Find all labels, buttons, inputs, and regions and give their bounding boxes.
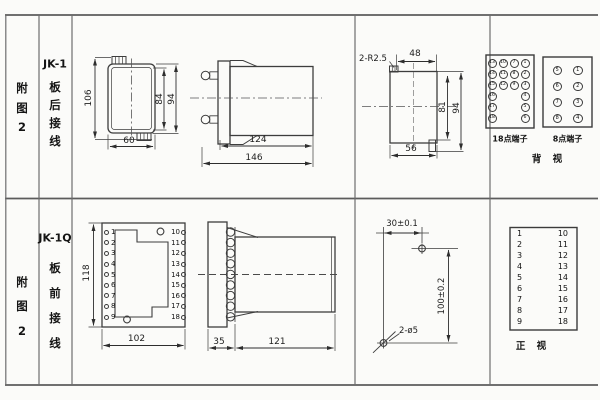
terminal-circle: 8 [510, 70, 519, 79]
dim-102: 102 [128, 334, 145, 344]
terminal-circle: 1 [521, 59, 530, 68]
dim-100: 100±0.2 [437, 278, 447, 315]
dim-94-cutout: 94 [452, 102, 462, 113]
dim-56: 56 [405, 144, 416, 154]
wiring-label-char: 前 [49, 285, 61, 301]
wiring-label-char: 接 [49, 115, 61, 131]
figure-label-char: 2 [18, 120, 26, 134]
dim-35: 35 [213, 337, 224, 347]
dim-118: 118 [82, 264, 92, 281]
terminal-circle: 16 [488, 92, 497, 101]
front-terminal: 1 [104, 228, 115, 237]
terminal-dot-icon [104, 293, 109, 298]
terminal-circle: 17 [488, 103, 497, 112]
terminal-circle: 12 [499, 81, 508, 90]
terminal-dot-icon [181, 240, 186, 245]
dim-30: 30±0.1 [386, 219, 417, 229]
label-front-view: 正 视 [516, 338, 550, 352]
terminal-dot-icon [181, 262, 186, 267]
terminal-circle: 1 [573, 66, 583, 76]
side-view-bottom-drawing [198, 222, 340, 351]
terminal-circle: 10 [499, 59, 508, 68]
front-terminal: 8 [104, 302, 115, 311]
front-terminal: 5 [104, 270, 115, 279]
dim-146: 146 [245, 153, 262, 163]
figure-label-char: 图 [16, 100, 28, 116]
terminal-dot-icon [181, 283, 186, 288]
terminal-dot-icon [104, 230, 109, 235]
terminal-circle: 14 [488, 70, 497, 79]
wiring-label-char: 后 [49, 97, 61, 113]
dim-84: 84 [155, 93, 165, 104]
terminal-table-row: 413 [511, 261, 576, 272]
terminal-circle: 2 [521, 70, 530, 79]
figure-label-char: 附 [16, 274, 28, 290]
terminal-dot-icon [181, 315, 186, 320]
front-terminal: 15 [165, 281, 186, 290]
terminal-dot-icon [104, 262, 109, 267]
front-terminal: 4 [104, 260, 115, 269]
label-18-point: 18点端子 [492, 133, 527, 144]
front-terminal: 11 [165, 238, 186, 247]
front-terminal: 6 [104, 281, 115, 290]
table-grid [5, 15, 598, 385]
terminal-dot-icon [104, 272, 109, 277]
manual-page: 附 图 2 JK-1 板 后 接 线 附 图 2 JK-1Q 板 前 接 线 1… [0, 0, 600, 400]
terminal-circle: 9 [510, 81, 519, 90]
terminal-table-row: 716 [511, 294, 576, 305]
terminal-dot-icon [181, 293, 186, 298]
terminal-table-row: 514 [511, 272, 576, 283]
front-terminal: 9 [104, 313, 115, 322]
label-back-view: 背 视 [532, 151, 566, 165]
terminal-dot-icon [104, 304, 109, 309]
dim-94: 94 [167, 93, 177, 104]
wiring-label-char: 接 [49, 310, 61, 326]
terminal-circle: 15 [488, 81, 497, 90]
terminal-dot-icon [104, 315, 109, 320]
terminal-dot-icon [181, 272, 186, 277]
label-hole-2-d5: 2-ø5 [399, 326, 418, 336]
terminal-circle: 6 [521, 114, 530, 123]
figure-label-char: 2 [18, 324, 26, 338]
wiring-label-char: 线 [49, 335, 61, 351]
label-2-r2-5: 2-R2.5 [359, 54, 387, 64]
terminal-circle: 7 [553, 98, 563, 108]
model-label-jk1q: JK-1Q [38, 232, 71, 245]
front-terminal: 3 [104, 249, 115, 258]
dim-81: 81 [438, 101, 448, 112]
wiring-label-char: 板 [49, 79, 61, 95]
terminal-table-row: 615 [511, 283, 576, 294]
front-terminal: 14 [165, 270, 186, 279]
front-terminal: 7 [104, 291, 115, 300]
wiring-label-char: 板 [49, 260, 61, 276]
terminal-circle: 5 [521, 103, 530, 112]
front-terminal: 18 [165, 313, 186, 322]
terminal-circle: 2 [573, 82, 583, 92]
terminal-table-row: 211 [511, 239, 576, 250]
terminal-circle: 18 [488, 114, 497, 123]
terminal-dot-icon [181, 251, 186, 256]
terminal-circle: 3 [573, 98, 583, 108]
front-terminal: 16 [165, 291, 186, 300]
dim-106: 106 [84, 89, 94, 106]
terminal-table-row: 918 [511, 316, 576, 327]
terminal-table-row: 817 [511, 305, 576, 316]
terminal-dot-icon [104, 240, 109, 245]
terminal-dot-icon [104, 251, 109, 256]
front-terminal: 13 [165, 260, 186, 269]
terminal-circle: 4 [573, 114, 583, 124]
dim-48: 48 [409, 49, 420, 59]
front-terminal: 12 [165, 249, 186, 258]
terminal-circle: 8 [553, 114, 563, 124]
terminal-table-row: 110 [511, 228, 576, 239]
figure-label-char: 图 [16, 298, 28, 314]
terminal-dot-icon [104, 283, 109, 288]
rear-view-drawing [95, 57, 179, 150]
terminal-circle: 6 [553, 82, 563, 92]
front-terminal: 10 [165, 228, 186, 237]
front-terminal: 2 [104, 238, 115, 247]
terminal-circle: 5 [553, 66, 563, 76]
terminal-circle: 11 [499, 70, 508, 79]
figure-label-char: 附 [16, 80, 28, 96]
terminal-dot-icon [181, 230, 186, 235]
wiring-label-char: 线 [49, 133, 61, 149]
side-view-top-drawing [190, 61, 322, 168]
terminal-circle: 4 [521, 92, 530, 101]
terminal-dot-icon [181, 304, 186, 309]
terminal-table-row: 312 [511, 250, 576, 261]
label-8-point: 8点端子 [553, 133, 583, 144]
terminal-circle: 3 [521, 81, 530, 90]
dim-121: 121 [268, 337, 285, 347]
model-label-jk1: JK-1 [43, 58, 67, 71]
terminal-circle: 13 [488, 59, 497, 68]
terminal-circle: 7 [510, 59, 519, 68]
dim-124: 124 [249, 135, 266, 145]
front-terminal: 17 [165, 302, 186, 311]
dim-60: 60 [123, 136, 134, 146]
